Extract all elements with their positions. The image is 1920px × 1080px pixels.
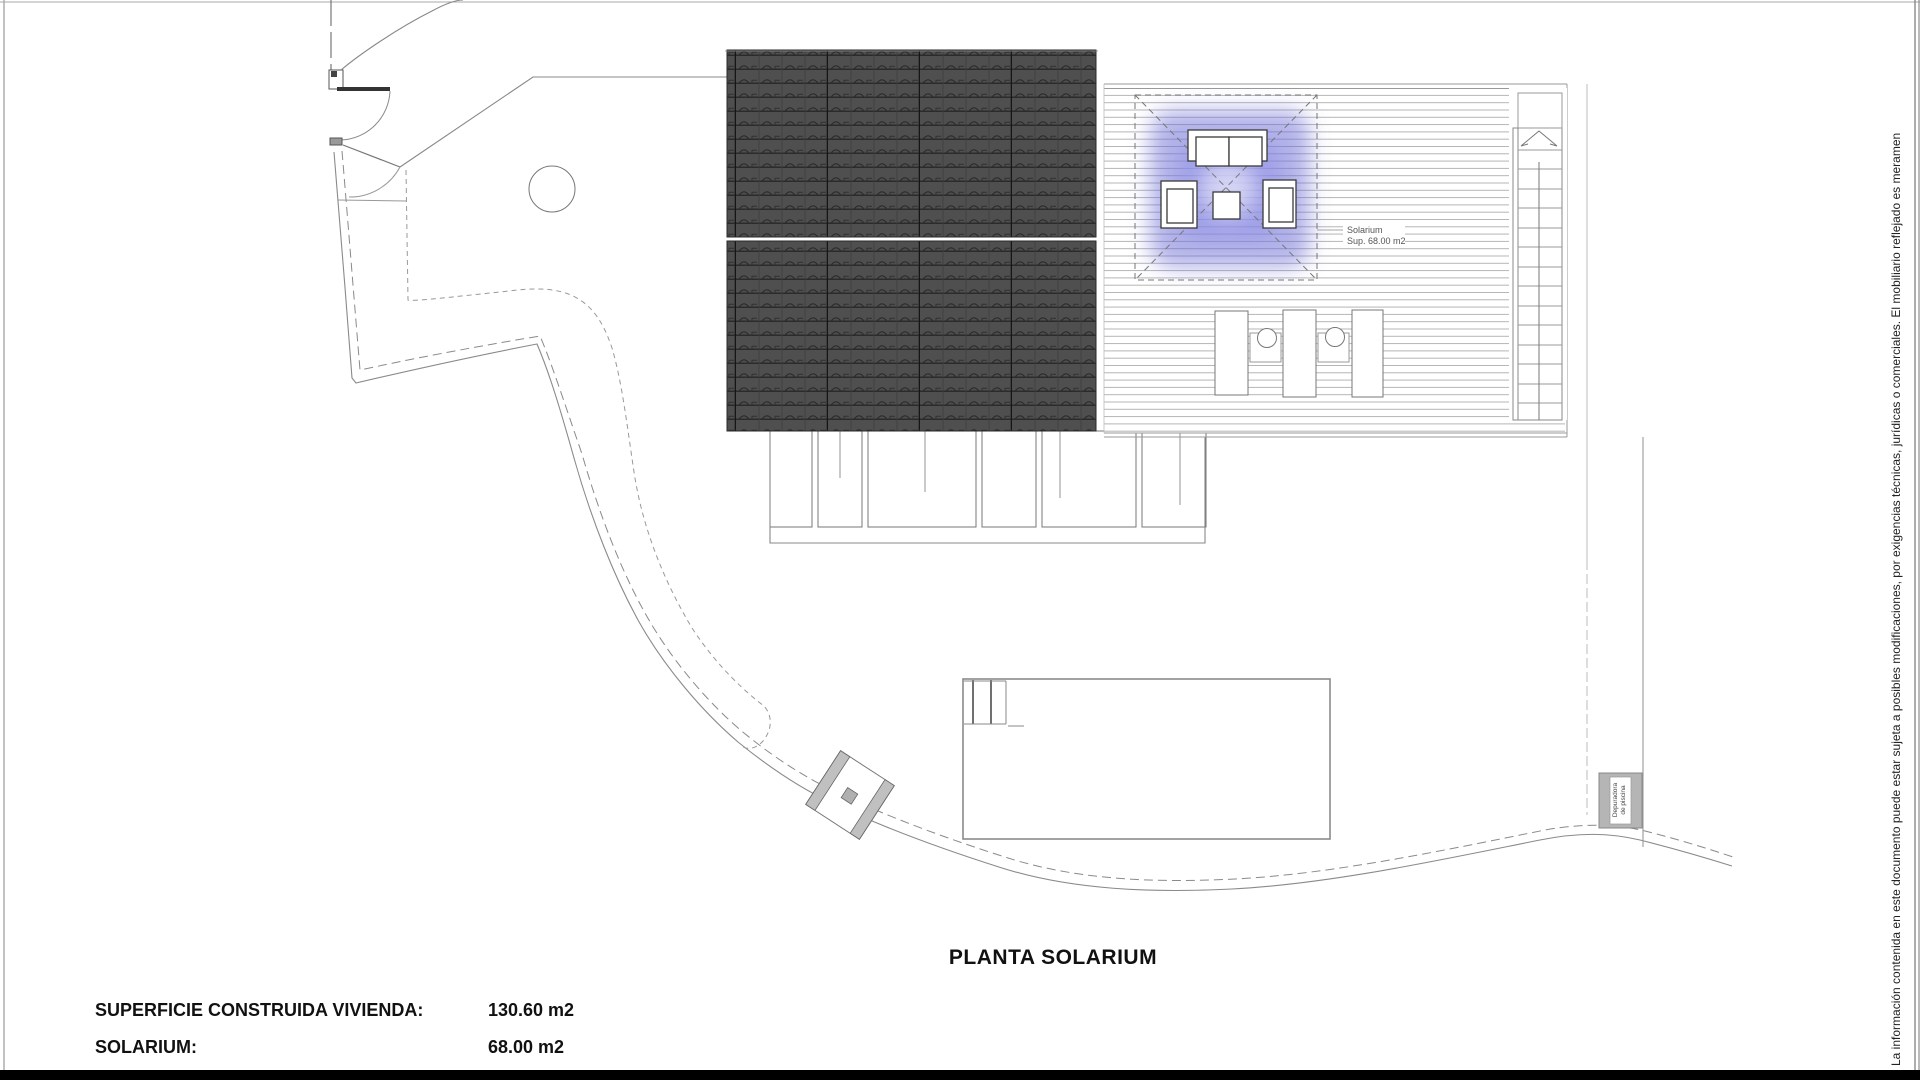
solarium-label-line1: Solarium — [1347, 225, 1383, 235]
stairs — [1509, 88, 1567, 420]
sun-lounger — [1215, 311, 1248, 395]
round-side-table — [1258, 329, 1277, 348]
measurement-value: 68.00 m2 — [488, 1037, 564, 1058]
legal-disclaimer: La información contenida en este documen… — [1889, 133, 1903, 1066]
sofa-cushion-right — [1229, 137, 1262, 166]
lawn-edge — [406, 170, 770, 748]
solarium-label-line2: Sup. 68.00 m2 — [1347, 236, 1406, 246]
page-title: PLANTA SOLARIUM — [853, 946, 1253, 970]
sun-loungers — [1215, 310, 1383, 397]
right-boundary-lines — [1587, 84, 1643, 847]
terrace-panels — [770, 431, 1206, 543]
entrance-gate — [329, 0, 406, 201]
sofa-cushion-left — [1196, 137, 1229, 166]
armchair-left-cushion — [1167, 189, 1193, 223]
sun-lounger — [1283, 310, 1316, 397]
measurement-value: 130.60 m2 — [488, 1000, 574, 1021]
round-side-table — [1326, 328, 1345, 347]
tree-symbol — [529, 166, 575, 212]
coffee-table — [1213, 192, 1240, 219]
roof-upper — [727, 50, 1096, 237]
measurements-block: SUPERFICIE CONSTRUIDA VIVIENDA:130.60 m2… — [95, 1000, 574, 1074]
sun-lounger — [1352, 310, 1383, 397]
armchair-right-cushion — [1269, 188, 1293, 222]
measurement-row: SOLARIUM:68.00 m2 — [95, 1037, 574, 1074]
pool-equipment-label-line1: Depuradora — [1612, 782, 1619, 817]
measurement-row: SUPERFICIE CONSTRUIDA VIVIENDA:130.60 m2 — [95, 1000, 574, 1037]
pool-equipment-box: Depuradora de piscina — [1599, 773, 1642, 828]
measurement-label: SOLARIUM: — [95, 1037, 488, 1058]
roofs — [725, 50, 1098, 431]
floor-plan-page: Depuradora de piscina — [0, 0, 1920, 1080]
bottom-window-bar — [0, 1070, 1920, 1080]
garden-gate-structure — [806, 751, 895, 840]
pool-equipment-label-line2: de piscina — [1620, 785, 1627, 815]
site-plan-drawing: Depuradora de piscina — [0, 0, 1920, 1080]
pool-ladder — [964, 680, 1024, 726]
measurement-label: SUPERFICIE CONSTRUIDA VIVIENDA: — [95, 1000, 488, 1021]
roof-lower — [727, 241, 1096, 431]
pool — [963, 679, 1330, 839]
